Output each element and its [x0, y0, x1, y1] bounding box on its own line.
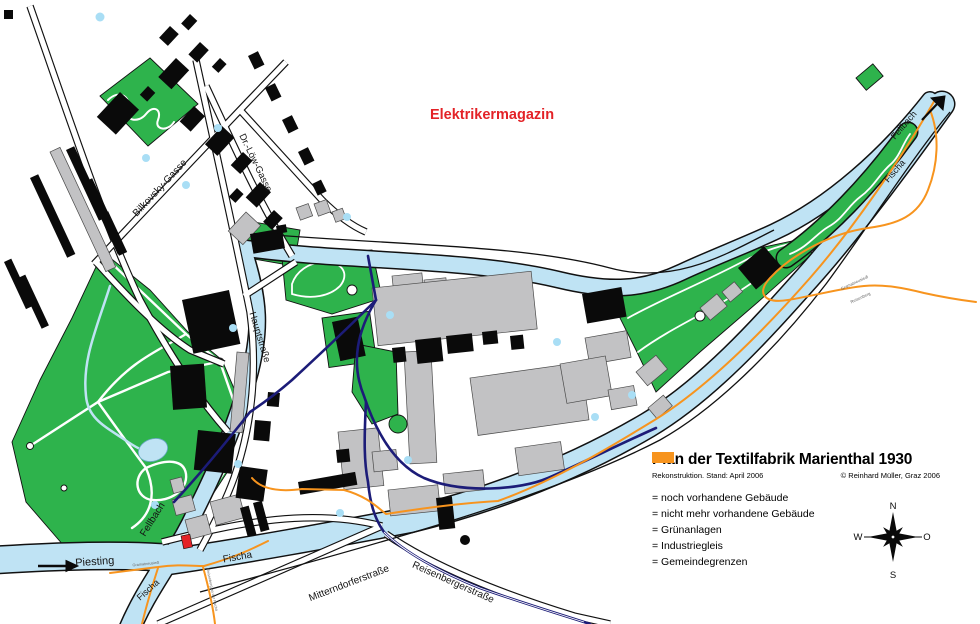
legend-panel: Plan der Textilfabrik Marienthal 1930 Re…	[652, 452, 952, 570]
legend-item-label: = nicht mehr vorhandene Gebäude	[652, 508, 815, 520]
compass-south-label: S	[890, 570, 896, 581]
legend-item-label: = Gemeindegrenzen	[652, 556, 747, 568]
legend-item-industrial-rail: = Industriegleis	[652, 538, 952, 554]
legend-item-existing-buildings: = noch vorhandene Gebäude	[652, 490, 952, 506]
legend-item-label: = Grünanlagen	[652, 524, 722, 536]
elektrikermagazin-label: Elektrikermagazin	[430, 107, 554, 123]
legend-item-label: = noch vorhandene Gebäude	[652, 492, 788, 504]
legend-item-gone-buildings: = nicht mehr vorhandene Gebäude	[652, 506, 952, 522]
map-page: Elektrikermagazin Bilkovsky-Gasse Dr.-Lö…	[0, 0, 980, 624]
legend-chip-orange	[652, 452, 674, 463]
legend-items: = noch vorhandene Gebäude = nicht mehr v…	[652, 490, 952, 570]
legend-item-municipal-boundaries: = Gemeindegrenzen	[652, 554, 952, 570]
map-subtitle-status: Rekonstruktion. Stand: April 2006	[652, 471, 763, 480]
map-subtitle-copyright: © Reinhard Müller, Graz 2006	[841, 471, 940, 480]
legend-item-green-areas: = Grünanlagen	[652, 522, 952, 538]
legend-item-label: = Industriegleis	[652, 540, 723, 552]
map-title: Plan der Textilfabrik Marienthal 1930	[652, 452, 952, 468]
